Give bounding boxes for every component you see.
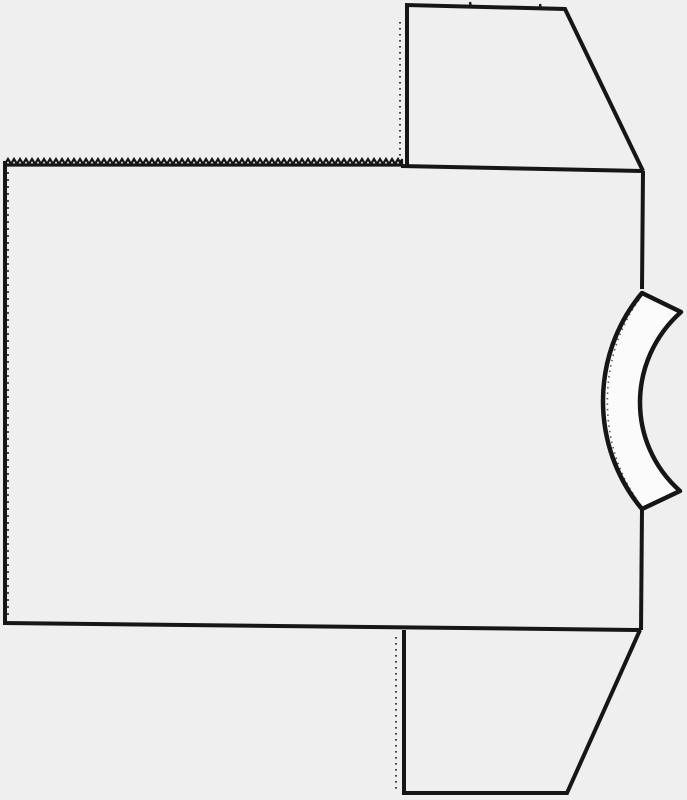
body-right-edge-upper [642,171,643,289]
top-sleeve-piece [400,2,643,171]
top-sleeve-notch-1 [470,2,471,8]
garment-pattern-diagram [0,0,687,800]
top-sleeve-notch-2 [540,4,541,10]
pattern-scan-page [0,0,687,800]
top-sleeve-outline [407,5,643,171]
bottom-sleeve-outline [404,630,640,793]
body-top-edge-zigzag [5,159,402,164]
body-top-edge-right [401,166,643,171]
bottom-sleeve-piece [396,630,640,793]
body-bottom-edge [3,623,641,630]
neckband-outline [603,293,681,509]
body-right-edge-lower [641,509,642,630]
body-panel [3,159,643,630]
neckband-piece [603,293,681,509]
